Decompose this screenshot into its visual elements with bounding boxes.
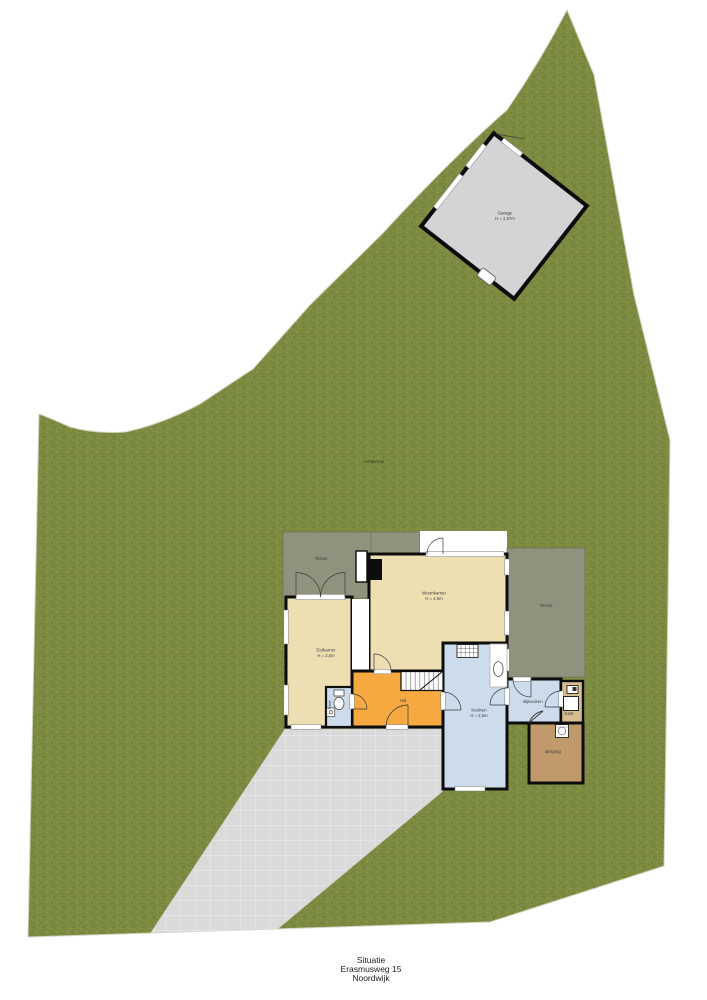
toilet-icon bbox=[334, 690, 344, 710]
room-label-toilet: Toilet bbox=[328, 700, 333, 709]
garage-height: H = 2,57m bbox=[495, 216, 514, 221]
stairs-icon bbox=[401, 672, 443, 691]
sink-icon bbox=[494, 662, 504, 677]
site-plan-page: Achtertuin Garage H = 2,57m Terras Terra… bbox=[0, 0, 707, 1000]
garden-label: Achtertuin bbox=[364, 459, 384, 465]
room-label-hal: Hal bbox=[400, 698, 407, 704]
garage-label: Garage H = 2,57m bbox=[495, 211, 514, 222]
caption-city: Noordwijk bbox=[341, 974, 402, 983]
washing-machine-icon bbox=[556, 725, 569, 738]
terrace-right bbox=[507, 548, 585, 677]
wall-gap-eetkamer-woonkamer bbox=[352, 599, 369, 670]
chimney bbox=[356, 551, 367, 582]
terrace-left-label: Terras bbox=[315, 556, 327, 562]
terrace-right-label: Terras bbox=[540, 603, 552, 609]
caption: Situatie Erasmusweg 15 Noordwijk bbox=[341, 956, 402, 983]
room-label-keuken: Keuken H = 2,6m bbox=[470, 708, 487, 719]
kitchen-counter bbox=[490, 644, 507, 687]
site-plan-drawing bbox=[0, 0, 707, 1000]
house-north-strip bbox=[420, 531, 507, 554]
chimney-block bbox=[367, 559, 382, 580]
room-label-eetkamer: Eetkamer H = 2,5m bbox=[316, 648, 335, 659]
room-label-berging: Berging bbox=[545, 749, 560, 755]
room-label-bijkeuken: Bijkeuken bbox=[523, 699, 542, 705]
room-label-woonkamer: Woonkamer H = 4,0m bbox=[422, 591, 446, 602]
room-label-kast: Kast bbox=[565, 711, 574, 717]
stove-icon bbox=[457, 645, 478, 658]
